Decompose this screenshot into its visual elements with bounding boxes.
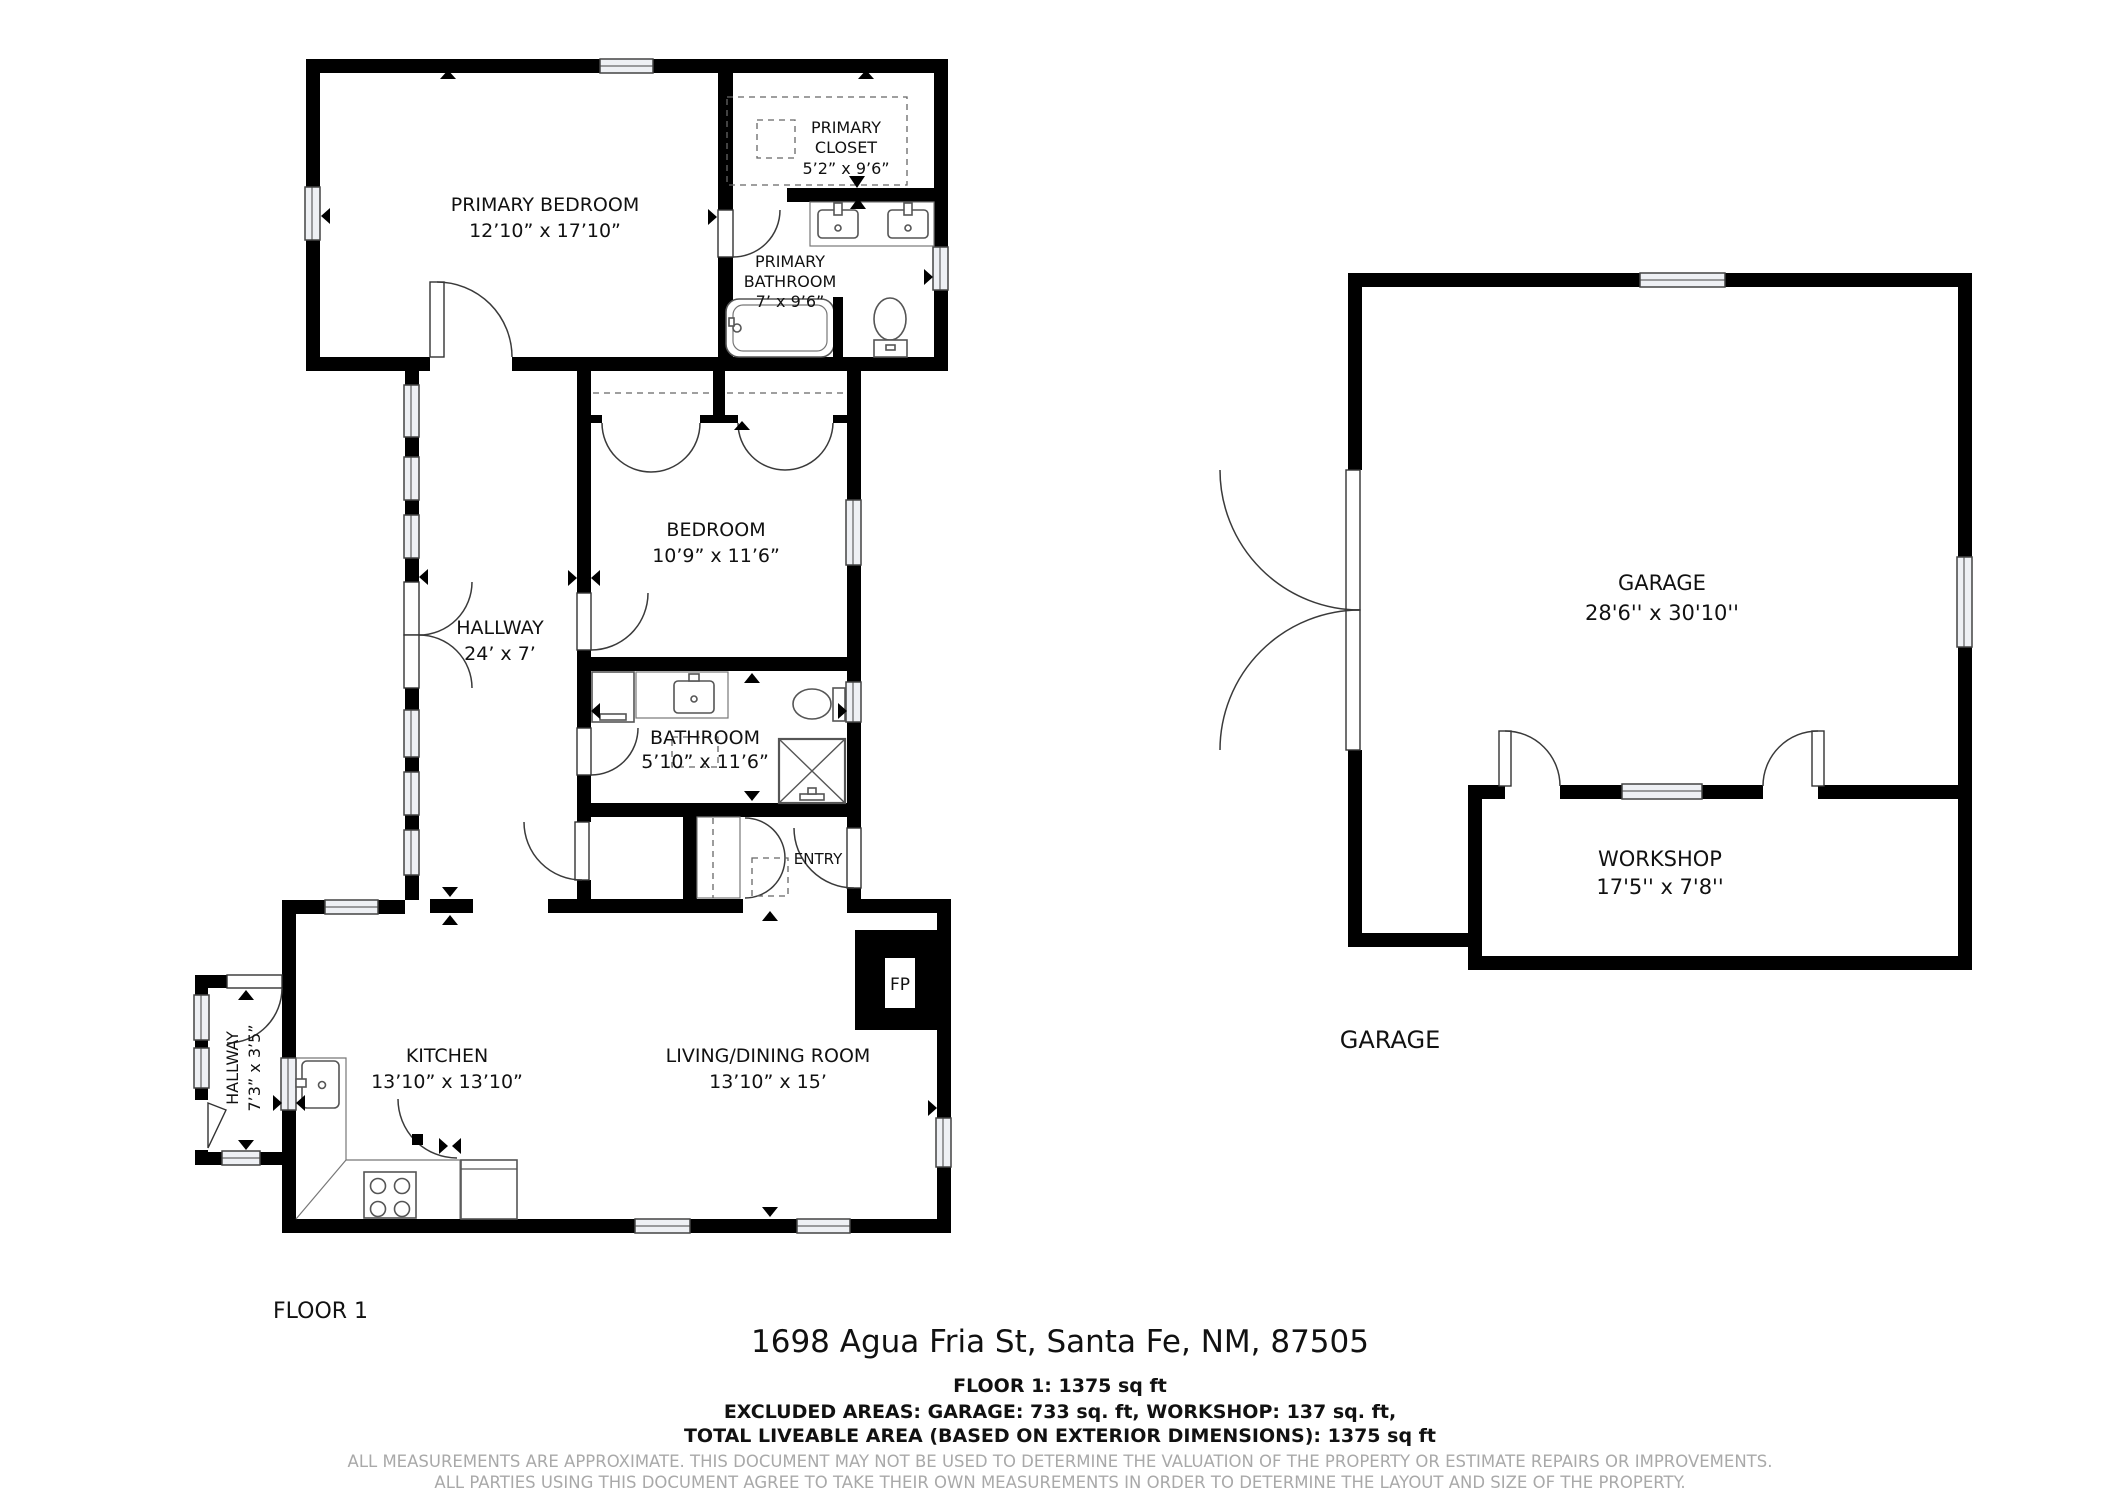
house-walls-shape — [405, 558, 419, 582]
house-walls-shape — [577, 657, 861, 671]
house-walls-shape — [577, 670, 591, 728]
house-walls-shape — [260, 1152, 296, 1165]
bathroom-toilet-shape — [793, 689, 831, 719]
window — [846, 682, 861, 722]
house-walls-shape — [306, 357, 430, 371]
house-walls-shape — [700, 415, 713, 423]
bathroom-label: BATHROOM — [650, 727, 760, 749]
garage-walls-shape — [1348, 287, 1362, 470]
hallway-dims: 24’ x 7’ — [464, 643, 536, 665]
shower-stall-shape — [800, 794, 824, 800]
window — [305, 187, 320, 240]
house-walls-shape — [195, 1040, 208, 1048]
primary-closet-label-line1: PRIMARY — [811, 118, 881, 137]
house-walls-shape — [430, 899, 473, 913]
bathroom-shower-cabinet-shape — [600, 714, 626, 720]
window — [404, 385, 419, 437]
window — [1622, 784, 1702, 799]
house-walls-shape — [405, 371, 419, 385]
refrigerator — [461, 1160, 517, 1219]
window — [1957, 557, 1972, 647]
bedroom-dims: 10’9” x 11’6” — [652, 545, 780, 567]
house-walls-shape — [847, 722, 861, 810]
house-walls-shape — [591, 415, 602, 423]
window — [194, 1048, 209, 1088]
primary-bath-toilet-shape — [874, 298, 906, 340]
garage-walls-shape — [1560, 785, 1622, 799]
side-hallway-dims: 7’3” x 3’5” — [245, 1024, 264, 1111]
primary-bathroom-label-line2: BATHROOM — [744, 272, 837, 291]
hallway-label: HALLWAY — [456, 617, 544, 639]
excluded-areas-text: EXCLUDED AREAS: GARAGE: 733 sq. ft, WORK… — [724, 1401, 1396, 1423]
floorplan-page: PRIMARY BEDROOM 12’10” x 17’10” PRIMARY … — [0, 0, 2110, 1492]
window — [222, 1151, 260, 1165]
hallway-french-doors-shape — [404, 635, 419, 688]
stove-shape — [395, 1179, 410, 1194]
house-walls-shape — [282, 900, 296, 1058]
primary-bathroom-dims: 7’ x 9’6” — [756, 292, 825, 311]
floorplan-canvas: PRIMARY BEDROOM 12’10” x 17’10” PRIMARY … — [0, 0, 2110, 1492]
shower-stall — [779, 739, 845, 803]
garage-walls-shape — [1348, 933, 1482, 947]
house-walls-shape — [934, 73, 948, 247]
house-walls-shape — [405, 500, 419, 515]
disclaimer-line2: ALL PARTIES USING THIS DOCUMENT AGREE TO… — [434, 1473, 1685, 1492]
house-walls-shape — [296, 900, 325, 914]
window — [325, 900, 378, 914]
house-walls-shape — [405, 757, 419, 772]
garage-walls-shape — [1818, 785, 1958, 799]
house-walls-shape — [577, 803, 861, 817]
front-door-shape — [847, 828, 861, 888]
window — [404, 710, 419, 757]
primary-bath-toilet — [874, 298, 907, 357]
primary-bathroom-label-line1: PRIMARY — [755, 252, 825, 271]
garage-room-label: GARAGE — [1618, 571, 1706, 595]
house-walls-shape — [405, 688, 419, 710]
garage-walls-shape — [1958, 287, 1972, 557]
side-hallway-label: HALLWAY — [223, 1031, 242, 1105]
bathroom-dims: 5’10” x 11’6” — [641, 751, 769, 773]
garage-room-dims: 28'6'' x 30'10'' — [1585, 601, 1739, 625]
house-walls-shape — [847, 371, 861, 500]
garage-walls-shape — [1468, 956, 1972, 970]
garage-walls-shape — [1958, 647, 1972, 970]
house-walls-shape — [850, 1219, 951, 1233]
house-walls-shape — [577, 371, 591, 593]
house-walls-shape — [683, 817, 697, 913]
pass-through-window — [281, 1058, 296, 1110]
stove — [364, 1172, 416, 1218]
kitchen-label: KITCHEN — [406, 1045, 488, 1067]
garage-caption: GARAGE — [1340, 1026, 1440, 1054]
bathroom-vanity-shape — [689, 674, 699, 681]
window — [635, 1219, 690, 1233]
kitchen-sink-shape — [296, 1079, 306, 1087]
house-walls-shape — [195, 1152, 222, 1165]
primary-bath-vanity-shape — [834, 203, 842, 215]
primary-bedroom-door-shape — [430, 282, 444, 357]
laundry-door-shape — [575, 822, 589, 880]
disclaimer-line1: ALL MEASUREMENTS ARE APPROXIMATE. THIS D… — [348, 1452, 1773, 1471]
living-dining-dims: 13’10” x 15’ — [709, 1071, 827, 1093]
house-walls-shape — [548, 899, 690, 913]
garage-entry-double-doors-shape — [1346, 610, 1360, 750]
primary-bath-vanity-shape — [835, 225, 841, 231]
kitchen-swing-door-shape — [412, 1134, 423, 1145]
house-walls-shape — [861, 899, 951, 913]
kitchen-sink-shape — [319, 1082, 326, 1089]
kitchen-dims: 13’10” x 13’10” — [371, 1071, 523, 1093]
house-walls-shape — [512, 357, 948, 371]
bedroom-door-shape — [577, 593, 591, 650]
window — [600, 59, 653, 73]
shower-stall-shape — [808, 788, 816, 794]
window — [846, 500, 861, 565]
house-walls-shape — [847, 810, 861, 828]
house-walls-shape — [405, 437, 419, 457]
house-walls-shape — [306, 73, 320, 187]
garage-walls-shape — [1468, 785, 1482, 970]
workshop-label: WORKSHOP — [1598, 847, 1722, 871]
primary-closet-dims: 5’2” x 9’6” — [802, 159, 889, 178]
window — [194, 995, 209, 1040]
house-walls-shape — [725, 415, 738, 423]
house-walls-shape — [713, 371, 725, 423]
fireplace-label: FP — [890, 975, 910, 995]
total-area-text: TOTAL LIVEABLE AREA (BASED ON EXTERIOR D… — [684, 1425, 1436, 1447]
window — [404, 772, 419, 815]
bathroom-toilet — [793, 688, 845, 721]
hallway-french-doors-shape — [404, 582, 419, 635]
stove-shape — [395, 1202, 410, 1217]
workshop-door-left-shape — [1499, 731, 1511, 786]
house-walls-shape — [690, 899, 743, 913]
window — [936, 1118, 951, 1167]
bathtub-shape — [729, 318, 734, 326]
stove-shape — [371, 1202, 386, 1217]
primary-bath-vanity-shape — [905, 225, 911, 231]
primary-bedroom-dims: 12’10” x 17’10” — [469, 220, 621, 242]
house-walls-shape — [306, 240, 320, 371]
workshop-door-right-shape — [1812, 731, 1824, 786]
window — [1640, 273, 1725, 287]
side-hallway-door-shape — [227, 975, 282, 988]
house-walls-shape — [718, 73, 733, 210]
window — [404, 830, 419, 875]
address: 1698 Agua Fria St, Santa Fe, NM, 87505 — [751, 1324, 1369, 1360]
house-walls-shape — [833, 415, 847, 423]
house-walls-shape — [195, 988, 208, 995]
bedroom-label: BEDROOM — [666, 519, 765, 541]
primary-bedroom-label: PRIMARY BEDROOM — [451, 194, 639, 216]
primary-closet-label-line2: CLOSET — [815, 138, 877, 157]
garage-walls-shape — [1348, 750, 1362, 947]
primary-bath-vanity-shape — [904, 203, 912, 215]
living-dining-label: LIVING/DINING ROOM — [666, 1045, 871, 1067]
house-walls-shape — [378, 900, 405, 914]
window — [797, 1219, 850, 1233]
window — [933, 247, 948, 290]
garage-walls-shape — [1702, 785, 1763, 799]
stove-shape — [371, 1179, 386, 1194]
house-walls-shape — [405, 875, 419, 900]
house-walls-shape — [787, 188, 934, 202]
house-walls-shape — [195, 1088, 208, 1100]
floor1-caption: FLOOR 1 — [273, 1299, 368, 1324]
house-walls-shape — [195, 975, 227, 988]
house-walls-shape — [282, 1219, 635, 1233]
house-walls-shape — [690, 1219, 797, 1233]
window — [404, 515, 419, 558]
bathroom-vanity-shape — [691, 696, 697, 702]
house-walls-shape — [847, 888, 861, 913]
garage-entry-double-doors-shape — [1346, 470, 1360, 610]
floor-area-text: FLOOR 1: 1375 sq ft — [953, 1375, 1167, 1397]
primary-bathroom-door-shape — [718, 210, 733, 257]
bathroom-door-shape — [577, 728, 591, 775]
house-walls-shape — [405, 815, 419, 830]
tub-partition-wall — [833, 297, 843, 357]
entry-label: ENTRY — [794, 850, 843, 868]
workshop-dims: 17'5'' x 7'8'' — [1596, 875, 1723, 899]
primary-bath-toilet-shape — [886, 345, 895, 350]
window — [404, 457, 419, 500]
